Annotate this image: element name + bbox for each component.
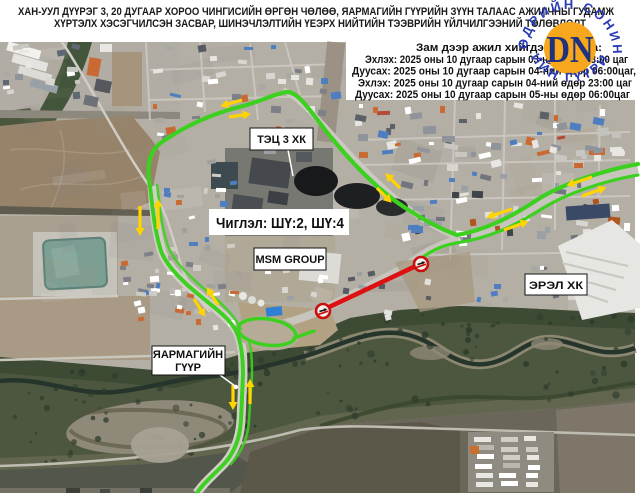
svg-text:ГҮҮР: ГҮҮР (175, 362, 201, 374)
svg-text:ХҮРТЭЛХ ХЭСЭГЧИЛСЭН ЗАСВАР, ШИ: ХҮРТЭЛХ ХЭСЭГЧИЛСЭН ЗАСВАР, ШИНЭЧЛЭЛТИЙН… (54, 17, 586, 30)
svg-text:ТЭЦ 3 ХК: ТЭЦ 3 ХК (257, 134, 306, 146)
svg-text:ХАН-УУЛ ДҮҮРЭГ 3, 20 ДУГААР ХО: ХАН-УУЛ ДҮҮРЭГ 3, 20 ДУГААР ХОРОО ЧИНГИС… (18, 5, 614, 18)
svg-text:Дуусах: 2025 оны 10 дугаар сар: Дуусах: 2025 оны 10 дугаар сарын 05-ны ө… (355, 89, 630, 101)
svg-text:Чиглэл: ШҮ:2, ШҮ:4: Чиглэл: ШҮ:2, ШҮ:4 (216, 215, 345, 232)
svg-text:ЭРЭЛ ХК: ЭРЭЛ ХК (529, 280, 583, 292)
svg-text:ЯАРМАГИЙН: ЯАРМАГИЙН (153, 348, 223, 361)
svg-text:MSM GROUP: MSM GROUP (255, 254, 324, 266)
svg-text:DN: DN (547, 29, 594, 71)
